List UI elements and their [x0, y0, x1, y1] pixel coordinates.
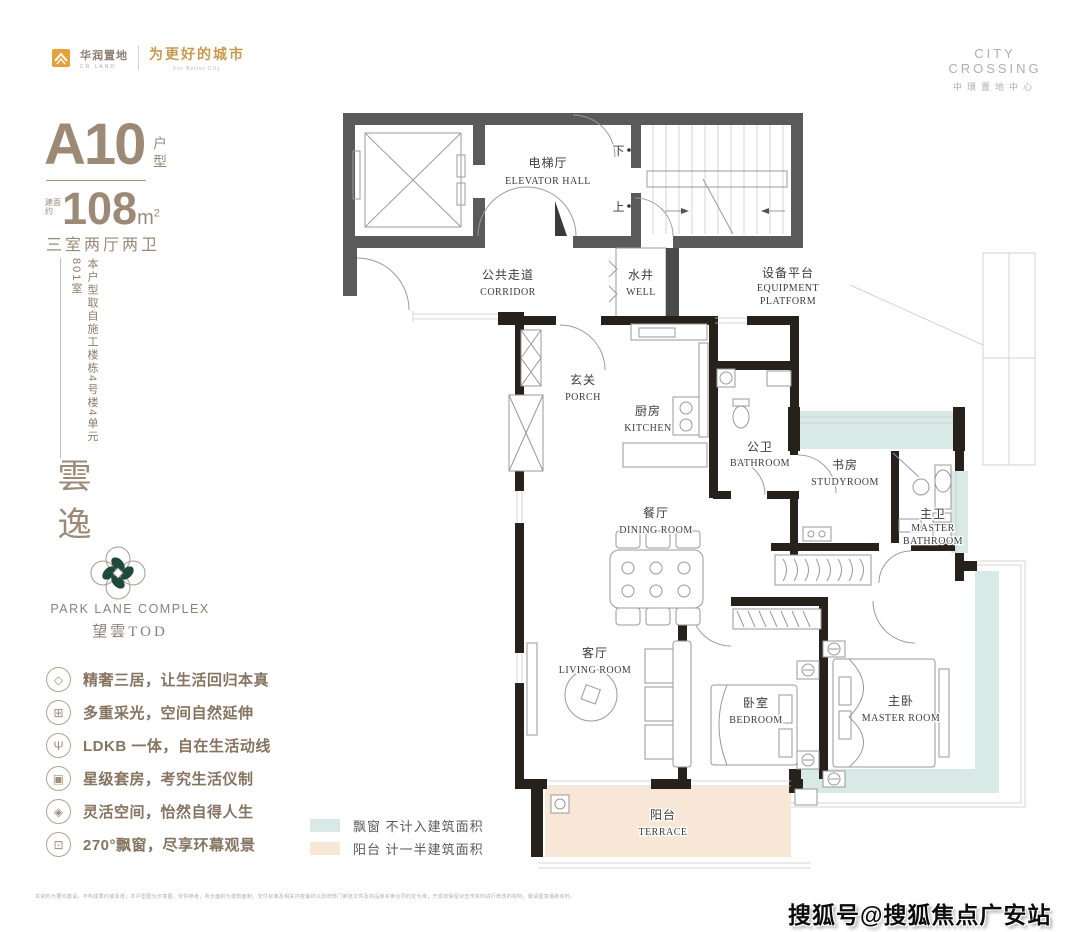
room-label-living-zh: 客厅 — [582, 645, 608, 660]
brand-divider — [138, 46, 139, 70]
room-label-kitchen-en: KITCHEN — [624, 423, 671, 434]
area-prefix: 建面约 — [45, 198, 61, 216]
feature-list: ◇ 精奢三居，让生活回归本真 ⊞ 多重采光，空间自然延伸 Ψ LDKB 一体，自… — [46, 663, 271, 861]
unit-divider-rule — [46, 180, 146, 181]
feature-text: 270°飘窗，尽享环幕观景 — [83, 834, 256, 855]
room-label-master-bath-zh: 主卫 — [920, 507, 946, 521]
well-shaft — [609, 248, 679, 318]
room-label-terrace-zh: 阳台 — [650, 807, 676, 822]
room-label-bedroom-zh: 卧室 — [743, 695, 769, 710]
daylight-window-icon: ⊞ — [46, 700, 71, 725]
room-label-bathroom-zh: 公卫 — [747, 440, 773, 454]
room-label-kitchen-zh: 厨房 — [635, 403, 661, 418]
terrace-edge-lines — [538, 863, 811, 868]
kitchen-fixtures — [623, 324, 708, 467]
city-crossing-zh: 中環置地中心 — [930, 80, 1060, 93]
room-label-well-zh: 水井 — [628, 268, 654, 282]
feature-text: LDKB 一体，自在生活动线 — [83, 735, 271, 756]
room-label-study-en: STUDYROOM — [811, 477, 879, 488]
suite-bed-icon: ▣ — [46, 766, 71, 791]
room-label-well-en: WELL — [626, 287, 656, 298]
bedroom-furniture — [711, 609, 821, 769]
room-label-terrace-en: TERRACE — [638, 827, 687, 838]
walkin-closet — [775, 555, 871, 585]
city-crossing-en: CITY CROSSING — [930, 46, 1060, 76]
room-label-elevator-hall-en: ELEVATOR HALL — [505, 176, 591, 187]
living-room-furniture — [527, 641, 691, 767]
disclaimer-text: 本资料为要约邀请，不构成要约或承诺；本户型图为示意图，仅供参考，所示面积为建筑面… — [35, 893, 575, 900]
room-label-master-room-en: MASTER ROOM — [862, 713, 941, 724]
stair-label-down: 下 — [612, 144, 625, 158]
room-label-equipment-en2: PLATFORM — [760, 296, 816, 307]
elevator-shaft — [353, 133, 465, 227]
unit-code-suffix: 户型 — [150, 136, 170, 172]
bathroom-fixtures — [717, 369, 791, 428]
quatrefoil-flower-logo — [88, 544, 148, 602]
feature-item: ⊡ 270°飘窗，尽享环幕观景 — [46, 828, 271, 861]
source-note-vertical: 本户型取自施工楼栋4号楼4单元801室 — [60, 258, 100, 458]
room-label-equipment-zh: 设备平台 — [762, 265, 814, 280]
cr-land-logo-icon — [52, 49, 70, 67]
logo-subtitle: 望雲TOD — [35, 620, 225, 641]
feature-item: ▣ 星级套房，考究生活仪制 — [46, 762, 271, 795]
room-label-porch-zh: 玄关 — [570, 372, 596, 387]
feature-text: 多重采光，空间自然延伸 — [83, 702, 254, 723]
room-label-master-bath-en2: BATHROOM — [903, 536, 963, 547]
unit-code: A10 — [44, 116, 144, 174]
room-label-master-bath-en1: MASTER — [911, 523, 955, 534]
logo-title: PARK LANE COMPLEX — [35, 602, 225, 616]
rooms-summary: 三室两厅两卫 — [46, 231, 160, 255]
room-label-corridor-en: CORRIDOR — [480, 287, 536, 298]
feature-text: 精奢三居，让生活回归本真 — [83, 669, 269, 690]
brand-name-en: CR LAND — [80, 64, 128, 70]
bay-window-icon: ⊡ — [46, 832, 71, 857]
terrace-side-window — [795, 789, 817, 805]
stairwell — [627, 125, 787, 234]
room-label-study-zh: 书房 — [832, 457, 858, 472]
stair-label-up: 上 — [612, 200, 625, 214]
dining-set — [610, 531, 703, 625]
brand-slogan-en: For Better City — [149, 66, 245, 72]
common-core-walls — [343, 113, 803, 296]
room-label-dining-en: DINING ROOM — [619, 525, 693, 536]
door-stop — [555, 201, 567, 236]
terrace-fixtures — [551, 795, 569, 813]
brand-cr-land: 华润置地 CR LAND 为更好的城市 For Better City — [52, 44, 245, 72]
room-label-bedroom-en: BEDROOM — [729, 715, 783, 726]
feature-item: Ψ LDKB 一体，自在生活动线 — [46, 729, 271, 762]
flexible-space-icon: ◈ — [46, 799, 71, 824]
feature-text: 灵活空间，怡然自得人生 — [83, 801, 254, 822]
room-label-corridor-zh: 公共走道 — [482, 268, 534, 282]
brand-slogan-zh: 为更好的城市 — [149, 44, 245, 64]
diamond-icon: ◇ — [46, 667, 71, 692]
feature-text: 星级套房，考究生活仪制 — [83, 768, 254, 789]
brand-city-crossing: CITY CROSSING 中環置地中心 — [930, 46, 1060, 93]
feature-item: ◈ 灵活空间，怡然自得人生 — [46, 795, 271, 828]
terrace-fill — [545, 787, 791, 857]
room-label-bathroom-en: BATHROOM — [730, 458, 790, 469]
watermark-text: 搜狐号@搜狐焦点广安站 — [788, 896, 1051, 930]
room-label-equipment-en1: EQUIPMENT — [757, 283, 819, 294]
corridor-edge — [413, 311, 498, 322]
room-label-master-room-zh: 主卧 — [888, 694, 914, 708]
room-label-elevator-hall-zh: 电梯厅 — [528, 156, 567, 170]
area-value: 108m2 — [62, 186, 160, 231]
room-label-dining-zh: 餐厅 — [643, 505, 669, 520]
brand-name-zh: 华润置地 — [80, 47, 128, 63]
dining-set-icon: Ψ — [46, 733, 71, 758]
feature-item: ◇ 精奢三居，让生活回归本真 — [46, 663, 271, 696]
feature-item: ⊞ 多重采光，空间自然延伸 — [46, 696, 271, 729]
room-label-living-en: LIVING ROOM — [559, 665, 631, 676]
porch-closets — [509, 330, 543, 471]
room-label-porch-en: PORCH — [565, 392, 601, 403]
project-script-name: 雲逸 — [46, 458, 95, 554]
floor-plan: 电梯厅 ELEVATOR HALL 下 上 公共走道 CORRIDOR 水井 W… — [333, 103, 1051, 883]
